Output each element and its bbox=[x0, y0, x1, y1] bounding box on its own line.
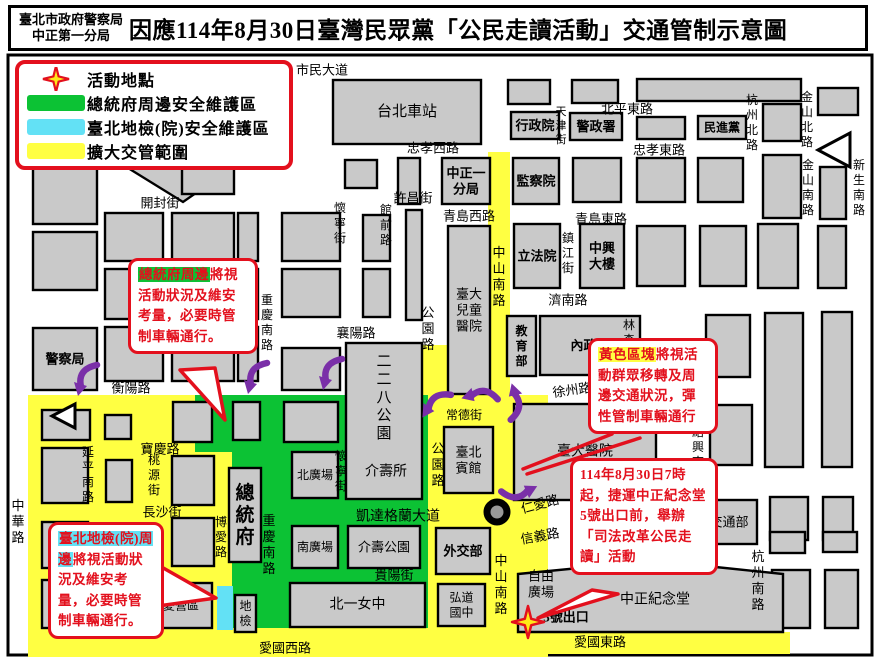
building bbox=[818, 226, 846, 288]
callout-taipei-prosecutors-zone: 臺北地檢(院)周邊將視活動狀況及維安考量，必要時管制車輛通行。 bbox=[48, 522, 164, 639]
map-label: 國中 bbox=[449, 605, 473, 620]
legend-swatch-icon bbox=[27, 143, 85, 159]
building bbox=[282, 269, 340, 317]
agency-name: 臺北市政府警察局 中正第一分局 bbox=[11, 12, 129, 45]
map-label: 許昌街 bbox=[393, 191, 432, 206]
building bbox=[172, 213, 234, 261]
map-label: 總統府 bbox=[235, 481, 254, 548]
building bbox=[282, 213, 340, 261]
building bbox=[637, 158, 685, 202]
map-label: 公園路 bbox=[421, 305, 434, 352]
title-bar: 臺北市政府警察局 中正第一分局 因應114年8月30日臺灣民眾黨「公民走讀活動」… bbox=[8, 5, 868, 51]
roundabout-icon bbox=[487, 502, 507, 522]
building bbox=[765, 313, 803, 467]
map-label: 凱達格蘭大道 bbox=[356, 509, 440, 525]
map-label: 弘道 bbox=[449, 591, 473, 605]
callout-text: 114年8月30日7時起，捷運中正紀念堂5號出口前，舉辦「司法改革公民走讀」活動 bbox=[580, 467, 706, 564]
building bbox=[758, 224, 798, 288]
map-label: 中正紀念堂 bbox=[620, 591, 690, 608]
map-label: 臺大 bbox=[456, 287, 482, 302]
building bbox=[763, 155, 801, 218]
map-label: 長沙街 bbox=[142, 505, 181, 520]
map-label: 愛國東路 bbox=[574, 635, 626, 650]
callout-yellow-zone: 黃色區塊將視活動群眾移轉及周邊交通狀況，彈性管制車輛通行 bbox=[588, 338, 718, 434]
legend-swatch-icon bbox=[27, 95, 85, 111]
building bbox=[823, 532, 857, 552]
agency-line1: 臺北市政府警察局 bbox=[19, 12, 123, 28]
callout-presidential-office-zone: 總統府周邊將視活動狀況及維安考量，必要時管制車輛通行。 bbox=[128, 258, 258, 354]
map-label: 外交部 bbox=[442, 544, 482, 559]
callout-highlight-text: 總統府周邊 bbox=[138, 267, 210, 282]
map-label: 常德街 bbox=[446, 407, 482, 422]
building bbox=[106, 460, 132, 502]
map-label: 衡陽路 bbox=[111, 381, 150, 396]
legend-item-0: 活動地點 bbox=[25, 67, 283, 91]
map-label: 忠孝東路 bbox=[633, 143, 685, 158]
map-label: 北一女中 bbox=[330, 596, 386, 613]
building bbox=[238, 213, 258, 261]
map-label: 延平南路 bbox=[82, 445, 94, 504]
building bbox=[700, 226, 746, 286]
legend-swatch-icon bbox=[27, 119, 85, 135]
legend-item-2: 臺北地檢(院)安全維護區 bbox=[25, 115, 283, 139]
map-label: 教育部 bbox=[514, 323, 528, 368]
map-label: 北廣場 bbox=[297, 468, 333, 482]
map-label: 公園路 bbox=[431, 441, 444, 488]
building bbox=[637, 117, 685, 139]
zone-prosecutors-security bbox=[217, 586, 233, 630]
building bbox=[818, 88, 858, 115]
page: 警察局台北車站行政院警政署民進黨中正一分局監察院立法院中興大樓教育部內政部臺大兒… bbox=[0, 0, 880, 663]
map-label: 博愛路 bbox=[215, 514, 227, 559]
building bbox=[172, 456, 214, 505]
map-label: 開封街 bbox=[140, 196, 179, 211]
map-label: 自由 bbox=[528, 569, 554, 584]
building bbox=[572, 80, 618, 103]
map-label: 賓館 bbox=[455, 461, 481, 476]
building bbox=[33, 232, 97, 290]
map-label: 監察院 bbox=[516, 174, 555, 189]
map-label: 大樓 bbox=[589, 257, 615, 272]
building bbox=[363, 269, 390, 317]
map-label: 濟南路 bbox=[548, 293, 587, 308]
map-label: 杭州南路 bbox=[751, 549, 764, 612]
building bbox=[282, 348, 340, 390]
map-label: 中山南路 bbox=[494, 553, 507, 616]
legend-label: 總統府周邊安全維護區 bbox=[87, 91, 257, 115]
map-label: 天津街 bbox=[556, 106, 567, 146]
map-label: 警察局 bbox=[45, 352, 84, 367]
legend-label: 擴大交管範圍 bbox=[87, 139, 189, 163]
building bbox=[637, 79, 801, 101]
map-label: 醫院 bbox=[456, 319, 482, 334]
building bbox=[820, 167, 846, 219]
building bbox=[284, 402, 338, 442]
map-label: 廣場 bbox=[528, 585, 554, 600]
legend-item-1: 總統府周邊安全維護區 bbox=[25, 91, 283, 115]
map-label: 立法院 bbox=[517, 249, 556, 264]
map-label: 館前路 bbox=[380, 202, 392, 247]
map-label: 介壽公園 bbox=[358, 540, 410, 555]
map-label: 市民大道 bbox=[296, 63, 348, 78]
map-label: 中正一 bbox=[446, 166, 485, 181]
event-location-star-icon bbox=[25, 67, 87, 91]
building bbox=[698, 158, 743, 202]
map-label: 警政署 bbox=[576, 119, 615, 134]
map-label: 青島西路 bbox=[443, 209, 495, 224]
map-label: 介壽所 bbox=[365, 464, 407, 480]
legend-label: 臺北地檢(院)安全維護區 bbox=[87, 115, 270, 139]
building bbox=[822, 312, 852, 467]
building bbox=[172, 518, 214, 566]
building bbox=[508, 80, 550, 104]
agency-line2: 中正第一分局 bbox=[19, 28, 123, 44]
map-label: 北平東路 bbox=[601, 102, 653, 117]
building bbox=[173, 402, 212, 442]
map-label: 懷寧街 bbox=[334, 201, 346, 245]
legend-item-3: 擴大交管範圍 bbox=[25, 139, 283, 163]
building bbox=[825, 570, 858, 628]
map-label: 鎮江街 bbox=[562, 230, 574, 275]
map-label: 重慶南路 bbox=[262, 513, 275, 576]
building bbox=[345, 160, 377, 188]
building bbox=[406, 210, 422, 320]
map-label: 臺北 bbox=[455, 445, 481, 460]
building bbox=[573, 158, 621, 202]
callout-event-info: 114年8月30日7時起，捷運中正紀念堂5號出口前，舉辦「司法改革公民走讀」活動 bbox=[570, 458, 718, 575]
map-label: 中華路 bbox=[11, 498, 24, 545]
legend-box: 活動地點總統府周邊安全維護區臺北地檢(院)安全維護區擴大交管範圍 bbox=[15, 60, 293, 170]
legend-label: 活動地點 bbox=[87, 67, 155, 91]
map-label: 愛國西路 bbox=[259, 641, 311, 656]
building bbox=[105, 415, 131, 439]
map-label: 民進黨 bbox=[704, 120, 740, 135]
map-label: 中山南路 bbox=[492, 245, 505, 308]
building bbox=[763, 104, 801, 141]
map-label: 分局 bbox=[453, 182, 479, 197]
map-label: 懷寧街 bbox=[335, 449, 347, 493]
map-label: 台北車站 bbox=[377, 103, 437, 120]
map-label: 貴陽街 bbox=[374, 568, 413, 583]
map-label: 青島東路 bbox=[575, 212, 627, 227]
map-label: 桃源街 bbox=[148, 452, 160, 497]
map-label: 忠孝西路 bbox=[407, 141, 459, 156]
building bbox=[233, 402, 260, 440]
zone-aiguo-e-rd bbox=[518, 632, 790, 654]
building bbox=[770, 532, 805, 553]
map-label: 行政院 bbox=[514, 118, 554, 133]
map-label: 地檢 bbox=[239, 599, 251, 628]
callout-highlight-text: 黃色區塊 bbox=[598, 347, 656, 362]
map-label: 兒童 bbox=[456, 303, 482, 318]
map-label: 重慶南路 bbox=[261, 293, 273, 352]
map-label: 南廣場 bbox=[297, 539, 333, 554]
map-label: 二二八公園 bbox=[376, 354, 391, 442]
map-label: 中興 bbox=[589, 241, 615, 256]
building bbox=[105, 213, 163, 261]
map-label: 襄陽路 bbox=[336, 326, 375, 341]
building bbox=[637, 226, 685, 286]
page-title: 因應114年8月30日臺灣民眾黨「公民走讀活動」交通管制示意圖 bbox=[129, 11, 787, 45]
